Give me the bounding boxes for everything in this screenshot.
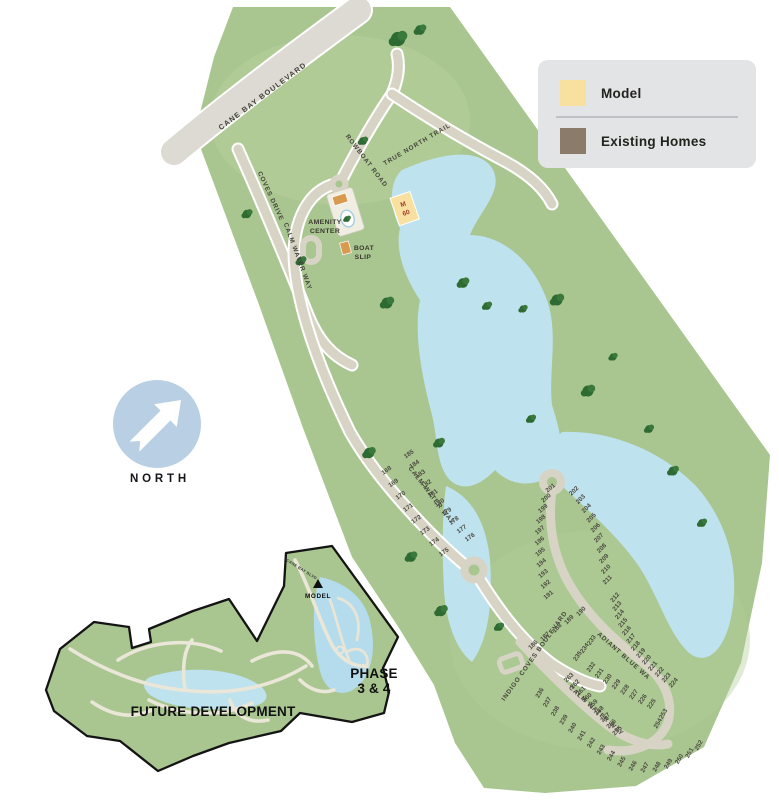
boat-slip-label-line2: SLIP	[355, 254, 372, 261]
legend: Model Existing Homes	[538, 60, 756, 168]
legend-model-swatch	[560, 80, 586, 106]
roundabout	[465, 561, 484, 580]
inset-map: MODEL CANE BAY BLVD FUTURE DEVELOPMENT P…	[46, 546, 398, 771]
legend-model-label: Model	[601, 86, 642, 101]
inset-phase-label-line1: PHASE	[350, 666, 398, 681]
boat-slip-label-line1: BOAT	[354, 245, 375, 252]
mini-roundabout	[333, 178, 346, 191]
legend-existing-swatch	[560, 128, 586, 154]
north-label: NORTH	[130, 473, 190, 485]
legend-existing-label: Existing Homes	[601, 134, 706, 149]
inset-model-label: MODEL	[305, 593, 331, 600]
site-map: M 60	[0, 0, 779, 800]
amenity-center-label-line2: CENTER	[310, 228, 340, 235]
north-indicator: NORTH	[113, 380, 201, 485]
amenity-center-label-line1: AMENITY	[308, 219, 341, 226]
site-map-page: M 60	[0, 0, 779, 800]
inset-future-label: FUTURE DEVELOPMENT	[131, 704, 296, 719]
inset-phase-label-line2: 3 & 4	[357, 681, 391, 696]
